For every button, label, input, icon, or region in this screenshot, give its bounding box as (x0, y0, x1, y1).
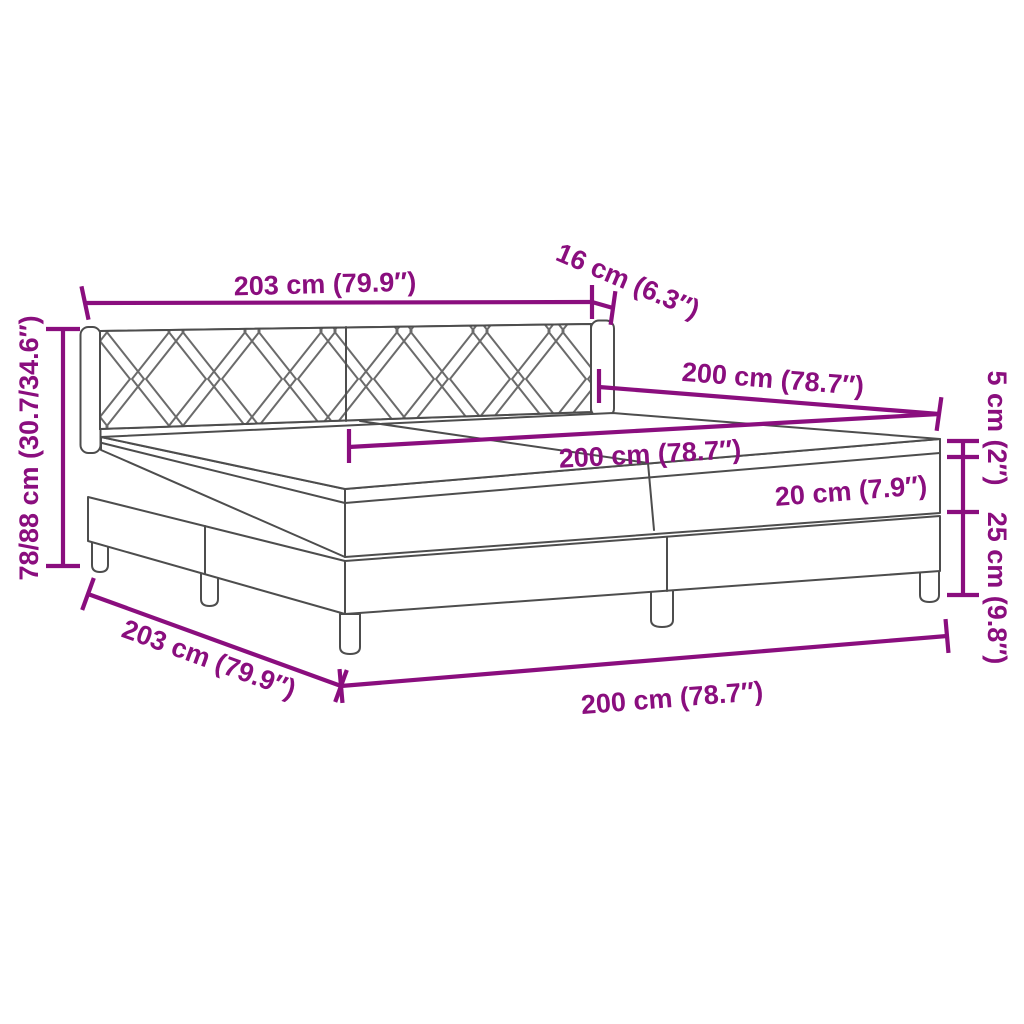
dim-label-box-height: 25 cm (9.8″) (982, 512, 1012, 665)
dim-label-topper-height: 5 cm (2″) (982, 371, 1012, 486)
dim-label-headboard-depth: 16 cm (6.3″) (552, 237, 704, 324)
headboard-right-wing (591, 321, 614, 417)
diagram-canvas: 203 cm (79.9″) 16 cm (6.3″) 78/88 cm (30… (0, 0, 1024, 1024)
dim-headboard-depth: 16 cm (6.3″) (552, 237, 704, 324)
headboard-left-wing (81, 327, 101, 453)
dim-headboard-width: 203 cm (79.9″) (81, 267, 592, 320)
dim-overall-height: 78/88 cm (30.7/34.6″) (14, 315, 80, 580)
dim-label-overall-height: 78/88 cm (30.7/34.6″) (14, 315, 44, 580)
dim-base-width: 200 cm (78.7″) (340, 619, 949, 720)
bed-dimension-diagram: 203 cm (79.9″) 16 cm (6.3″) 78/88 cm (30… (0, 0, 1024, 1024)
dim-label-base-width: 200 cm (78.7″) (580, 676, 764, 720)
leg (340, 614, 360, 654)
dim-label-headboard-width: 203 cm (79.9″) (233, 267, 416, 302)
dim-right-heights: 5 cm (2″) 25 cm (9.8″) (947, 371, 1012, 665)
